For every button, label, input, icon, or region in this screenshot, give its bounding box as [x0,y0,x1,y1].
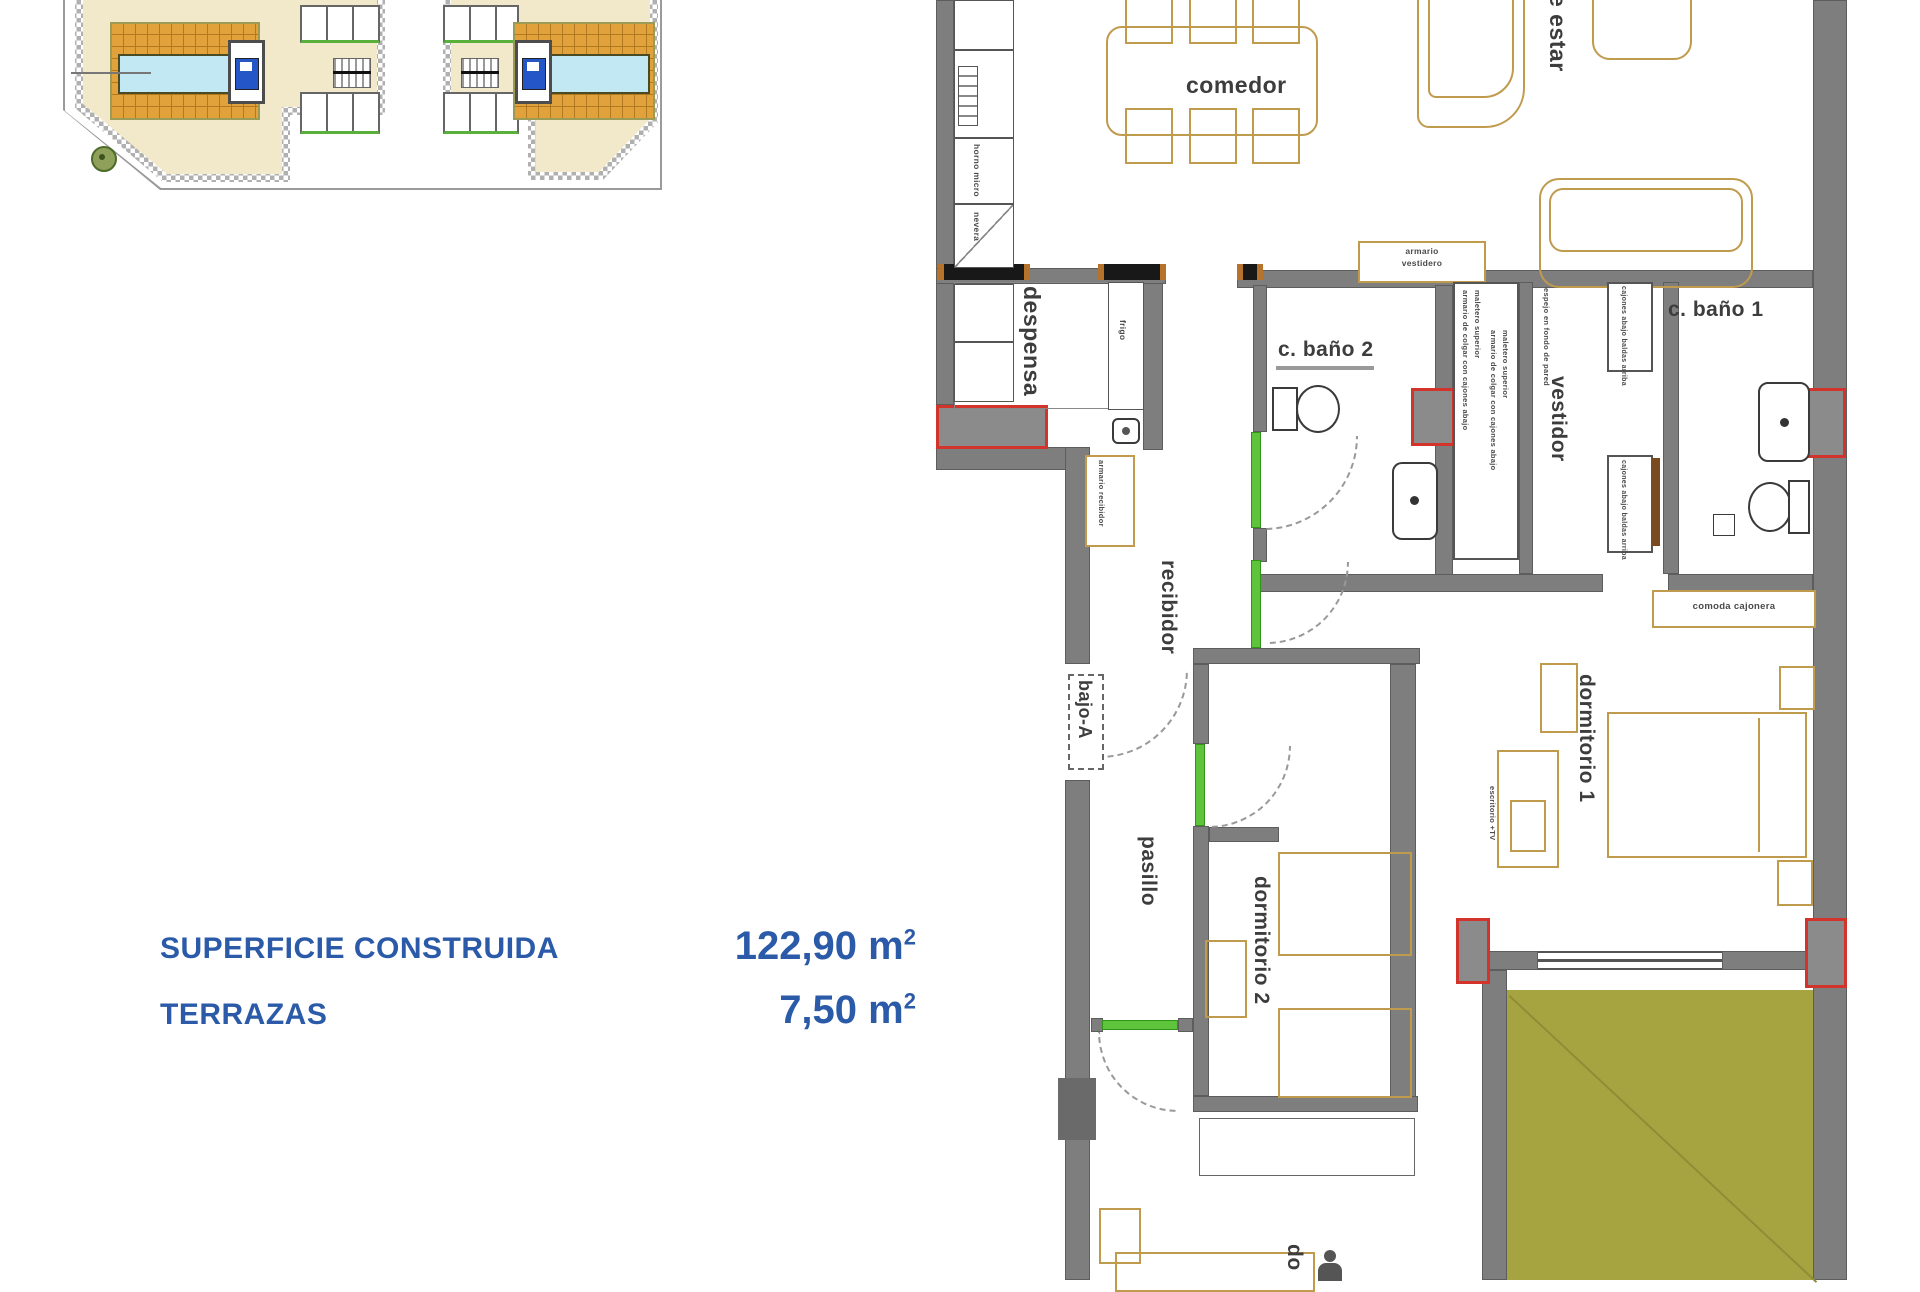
toilet-icon [1272,387,1298,431]
kitchen-cabinet [954,204,1014,268]
bed [1607,712,1807,858]
floorplan-page: { "canvas": {"width": 1920, "height": 12… [0,0,1920,1280]
chair [1125,108,1173,164]
closet-door-bar [1652,458,1660,546]
armchair-seat [1428,0,1514,98]
measurement-label: SUPERFICIE CONSTRUIDA [160,932,559,966]
kitchen-label-1: horno micro [972,144,982,197]
value-number: 7,50 [779,988,857,1032]
armario-vestidero-label2: vestidero [1358,258,1486,268]
wall-pillar [1058,1078,1096,1140]
door-arc-bano2 [1264,436,1358,530]
armario-recibidor-label: armario recibidor [1096,460,1106,527]
room-label-vestidor: vestidor [1546,376,1570,462]
door-arc-entry [1100,670,1188,758]
measurement-value: 122,90 m2 [686,924,916,969]
wall [1813,0,1847,1280]
room-label-comedor: comedor [1186,72,1287,99]
small-basin-drain [1122,427,1130,435]
bed-pillow-line [1758,718,1760,852]
closet-label: maletero superior [1500,330,1510,398]
kitchen-cabinet [954,0,1014,50]
wall [1253,528,1267,562]
wall [936,0,954,282]
wall [1143,268,1163,450]
sink-drain [1780,418,1789,427]
value-unit: m [868,988,904,1032]
nightstand [1779,666,1815,710]
shaft [1411,388,1455,446]
wall [936,282,954,405]
closet-cajones-2 [1607,455,1653,553]
room-label-bano2: c. baño 2 [1278,338,1374,362]
loveseat [1592,0,1692,60]
wardrobe-outline [1199,1118,1415,1176]
kitchen-cabinet [954,138,1014,204]
wall [1193,664,1209,744]
measurement-label: TERRAZAS [160,998,327,1032]
desk-label: escritorio +TV [1487,786,1497,840]
chair [1252,108,1300,164]
kitchen-appliance-handle [958,66,978,126]
door-lintel [1237,264,1263,280]
door-arc-dormitorio1 [1267,562,1349,644]
closet-cajones [1607,282,1653,372]
shaft [1806,388,1846,458]
room-label-dormitorio3: do [1282,1244,1306,1271]
room-label-recibidor: recibidor [1156,560,1180,654]
door-arc-dormitorio2 [1209,746,1291,828]
shaft [1805,918,1847,988]
door-dormitorio1 [1251,560,1261,648]
toilet-bowl-icon [1296,385,1340,433]
room-label-despensa: despensa [1018,286,1045,396]
value-sup: 2 [904,989,916,1014]
room-label-bano1: c. baño 1 [1668,298,1764,322]
wall [1193,1096,1418,1112]
frigo-label: frigo [1118,320,1128,340]
person-icon [1324,1250,1336,1262]
kitchen-label-2: nevera [972,212,982,241]
measurement-value: 7,50 m2 [686,988,916,1033]
bano2-underline [1276,366,1374,370]
armario-vestidero-label: armario [1358,246,1486,256]
wall [1253,285,1267,432]
nightstand [1777,860,1813,906]
closet-small [1540,663,1578,733]
chair [1125,0,1173,44]
door-dormitorio3 [1102,1020,1178,1030]
door-bano2 [1251,432,1261,528]
closet-label: armario de colgar con cajones abajo [1488,330,1498,471]
espejo-label: espejo en fondo de pared [1541,288,1551,386]
closet-label: armario de colgar con cajones abajo [1460,290,1470,431]
wall [1193,648,1420,664]
value-sup: 2 [904,925,916,950]
wall [1482,970,1507,1280]
bed [1278,852,1412,956]
room-label-pasillo: pasillo [1136,836,1160,906]
room-label-estar: e estar [1544,0,1571,72]
despensa-shelf [954,342,1014,402]
armario-recibidor [1085,455,1135,547]
bidet-icon [1713,514,1735,536]
room-label-dormitorio2: dormitorio 2 [1249,876,1273,1005]
sink-drain [1410,496,1419,505]
door-dormitorio2 [1195,744,1205,826]
shaft [936,405,1048,449]
chair [1252,0,1300,44]
closet-label: maletero superior [1472,290,1482,358]
comoda-cajonera-label: comoda cajonera [1652,602,1816,612]
value-unit: m [868,924,904,968]
value-number: 122,90 [735,924,857,968]
wall [1482,951,1538,970]
bed [1278,1008,1412,1098]
chair [1189,108,1237,164]
desk-monitor [1510,800,1546,852]
sofa-back [1549,188,1743,252]
closet-cajones2-label: cajones abajo baldas arriba [1618,460,1628,560]
nightstand [1205,940,1247,1018]
wall [1178,1018,1193,1032]
despensa-shelf [954,284,1014,342]
closet-cajones-label: cajones abajo baldas arriba [1618,286,1628,386]
entry-label: bajo-A [1074,680,1095,739]
wall [1209,827,1279,842]
toilet-bowl-icon [1748,482,1792,532]
apartment-plan: horno micro nevera comedor e estar armar… [0,0,1920,1280]
shaft [1456,918,1490,984]
frigo-nook [1108,282,1144,410]
door-arc-dormitorio3 [1098,1032,1178,1112]
window [1538,951,1722,970]
chair [1189,0,1237,44]
wall [1722,951,1813,970]
person-icon-body [1318,1263,1342,1281]
wall [1663,282,1679,574]
door-lintel [1098,264,1166,280]
wall [936,447,1066,470]
wall [1065,780,1090,1280]
toilet-icon [1788,480,1810,534]
wall [1519,282,1533,574]
